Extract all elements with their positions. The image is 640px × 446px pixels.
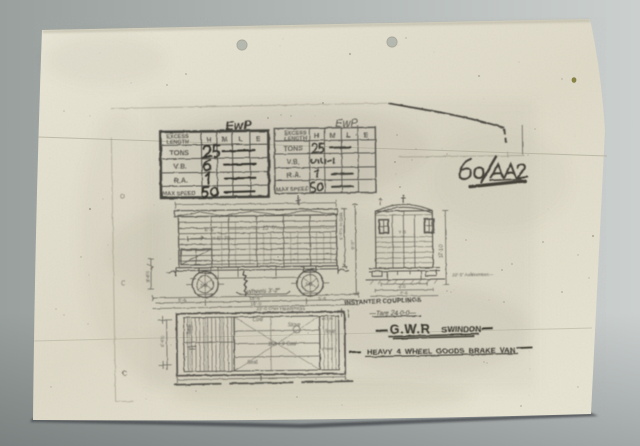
svg-text:Choke: Choke — [322, 346, 334, 351]
svg-text:3'-6½: 3'-6½ — [144, 271, 150, 283]
svg-text:H: H — [206, 137, 211, 144]
svg-text:Seat: Seat — [247, 360, 258, 366]
svg-text:V.B.: V.B. — [287, 159, 300, 166]
svg-text:MAX SPEED: MAX SPEED — [276, 187, 309, 193]
svg-text:6'-6: 6'-6 — [400, 290, 408, 295]
svg-text:15ft × 9 Coal: 15ft × 9 Coal — [268, 341, 297, 347]
svg-text:E: E — [363, 132, 368, 139]
svg-text:MAX SPEED: MAX SPEED — [163, 191, 196, 197]
svg-text:C: C — [122, 370, 127, 377]
svg-text:E: E — [256, 136, 261, 143]
svg-text:5'-6: 5'-6 — [178, 298, 186, 304]
svg-text:H: H — [314, 133, 319, 140]
svg-text:342: 342 — [305, 282, 313, 287]
svg-text:W.Exx: W.Exx — [322, 316, 334, 321]
svg-text:V.B.: V.B. — [174, 164, 187, 171]
svg-text:9'-0": 9'-0" — [350, 240, 356, 250]
svg-text:M: M — [329, 133, 335, 140]
svg-text:SWINDON: SWINDON — [442, 325, 482, 334]
svg-text:13'-6": 13'-6" — [262, 226, 276, 232]
svg-text:O: O — [120, 194, 125, 200]
svg-text:342: 342 — [200, 283, 208, 288]
svg-text:Seat: Seat — [325, 329, 336, 335]
svg-text:M: M — [221, 137, 227, 144]
svg-text:Seat: Seat — [187, 324, 193, 335]
svg-text:Y·B: Y·B — [399, 229, 407, 234]
svg-text:LENGTH: LENGTH — [166, 140, 189, 146]
svg-text:22'-0 Over Headstocks: 22'-0 Over Headstocks — [256, 306, 305, 313]
svg-text:TONS: TONS — [283, 146, 303, 153]
svg-text:Stove: Stove — [288, 322, 301, 328]
svg-text:5'-6: 5'-6 — [318, 296, 326, 302]
svg-text:C: C — [121, 281, 126, 287]
svg-text:R.A.: R.A. — [174, 178, 188, 185]
svg-text:TONS: TONS — [170, 150, 190, 157]
svg-text:6'-6": 6'-6" — [204, 227, 215, 233]
svg-text:R.A.: R.A. — [287, 172, 301, 179]
svg-text:= 6'-7½: = 6'-7½ — [213, 235, 232, 242]
svg-text:15'-6: 15'-6 — [249, 296, 260, 302]
svg-text:10'-5" Axlecentres—: 10'-5" Axlecentres— — [452, 272, 494, 278]
svg-text:G.W.R: G.W.R — [390, 322, 431, 336]
svg-text:12'-10: 12'-10 — [439, 245, 445, 259]
svg-text:LENGTH: LENGTH — [284, 136, 307, 142]
svg-text:6'-6½: 6'-6½ — [159, 336, 165, 347]
svg-text:Coal: Coal — [253, 317, 264, 323]
svg-text:4'-0: 4'-0 — [398, 284, 406, 289]
